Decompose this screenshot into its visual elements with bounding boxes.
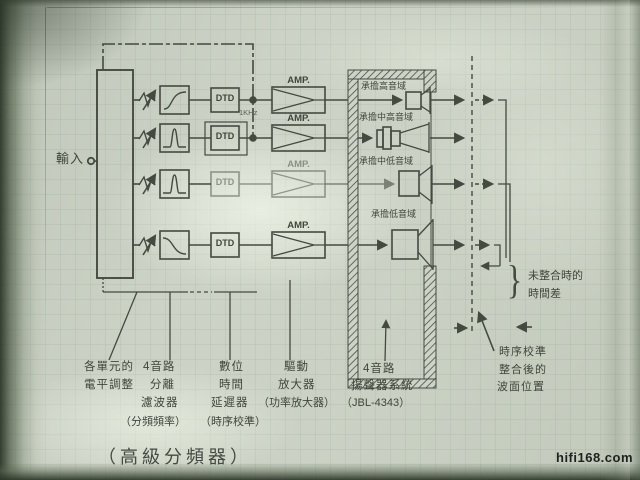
amp-label-1: AMP. [272,76,325,86]
bandpass-curve-icon [163,129,186,147]
amp-triangle-icon [273,173,325,195]
page-edge-shadow-top [0,0,640,7]
callout-level-line1: 各單元的 [84,361,134,374]
callout-speaker-line2: 揚聲器系統 [351,380,414,393]
speaker-leader-arrow [385,321,386,361]
page-fold-shading [600,0,630,480]
watermark: hifi168.com [556,450,633,465]
delay-extent-line [494,245,500,266]
callout-delay-line2: 時間 [219,379,244,392]
horn-driver-icon [377,122,429,153]
dtd-label-4: DTD [211,239,239,249]
callout-unaligned-line2: 時間差 [528,288,561,300]
callout-leaders [103,278,386,361]
callout-filter-line3: 濾波器 [141,397,179,410]
filter-box-bandpass [160,170,189,198]
callout-level-line2: 電平調整 [84,379,134,392]
callout-power-line3: （功率放大器） [258,397,335,409]
cabinet-wall-right-bottom [424,266,436,379]
brace-icon: } [507,256,522,303]
channel-mid-high [133,122,371,155]
freq-note: 1KHz [239,109,257,117]
driver-range-label-mid-low: 承擔中低音域 [359,157,413,167]
driver-range-label-high: 承擔高音域 [361,82,406,92]
driver-range-label-mid-high: 承擔中高音域 [359,113,413,123]
book-page-photo: 輸入 1KHz DTD DTD DTD DTD AMP. AMP. AMP. A… [0,0,640,480]
cabinet-wall-left [348,70,358,388]
page-edge-shadow-bottom [0,463,640,480]
midrange-driver-icon [399,165,432,204]
dtd-label-3: DTD [211,178,239,188]
callout-filter-line1: 4音路 [143,361,175,374]
amp-label-4: AMP. [272,221,325,231]
callout-filter-line2: 分離 [150,379,175,392]
callout-power-line2: 放大器 [278,379,316,392]
amp-triangle-icon [273,234,325,256]
callout-delay-line4: （時序校準） [200,416,266,428]
filter-box-highpass [160,86,189,114]
dtd-label-2: DTD [211,132,239,142]
page-corner-shadow [0,0,150,90]
callout-aligned-line1: 時序校準 [499,346,547,358]
amp-label-3: AMP. [272,160,325,170]
tweeter-icon [406,87,430,114]
amp-triangle-icon [273,127,325,149]
highpass-curve-icon [164,92,186,109]
woofer-icon [392,219,433,270]
input-terminal [88,158,97,164]
callout-unaligned-line1: 未整合時的 [528,270,583,282]
callout-filter-line4: （分頻頻率） [120,416,186,428]
filter-box-lowpass [160,231,189,259]
cabinet-wall-top [348,70,436,79]
callout-power-line1: 驅動 [284,361,309,374]
callout-delay-line1: 數位 [219,361,244,374]
level-adjust-box [97,70,133,278]
input-label: 輸入 [56,152,84,166]
callout-speaker-line1: 4音路 [363,363,395,376]
dtd-label-1: DTD [211,94,239,104]
aligned-leader-arrow [479,313,494,351]
delay-extent-line [498,100,506,258]
lowpass-curve-icon [163,238,186,254]
filter-box-bandpass [160,124,189,152]
amp-triangle-icon [273,89,325,111]
callout-delay-line3: 延遲器 [211,397,249,410]
amp-label-2: AMP. [272,114,325,124]
bandpass-curve-icon [163,175,186,193]
wavefront-annotation [430,56,532,351]
callout-speaker-line3: （JBL-4343） [341,397,410,409]
driver-range-label-low: 承擔低音域 [371,210,416,220]
callout-aligned-line2: 整合後的 [499,364,547,376]
callout-aligned-line3: 波面位置 [497,381,545,393]
